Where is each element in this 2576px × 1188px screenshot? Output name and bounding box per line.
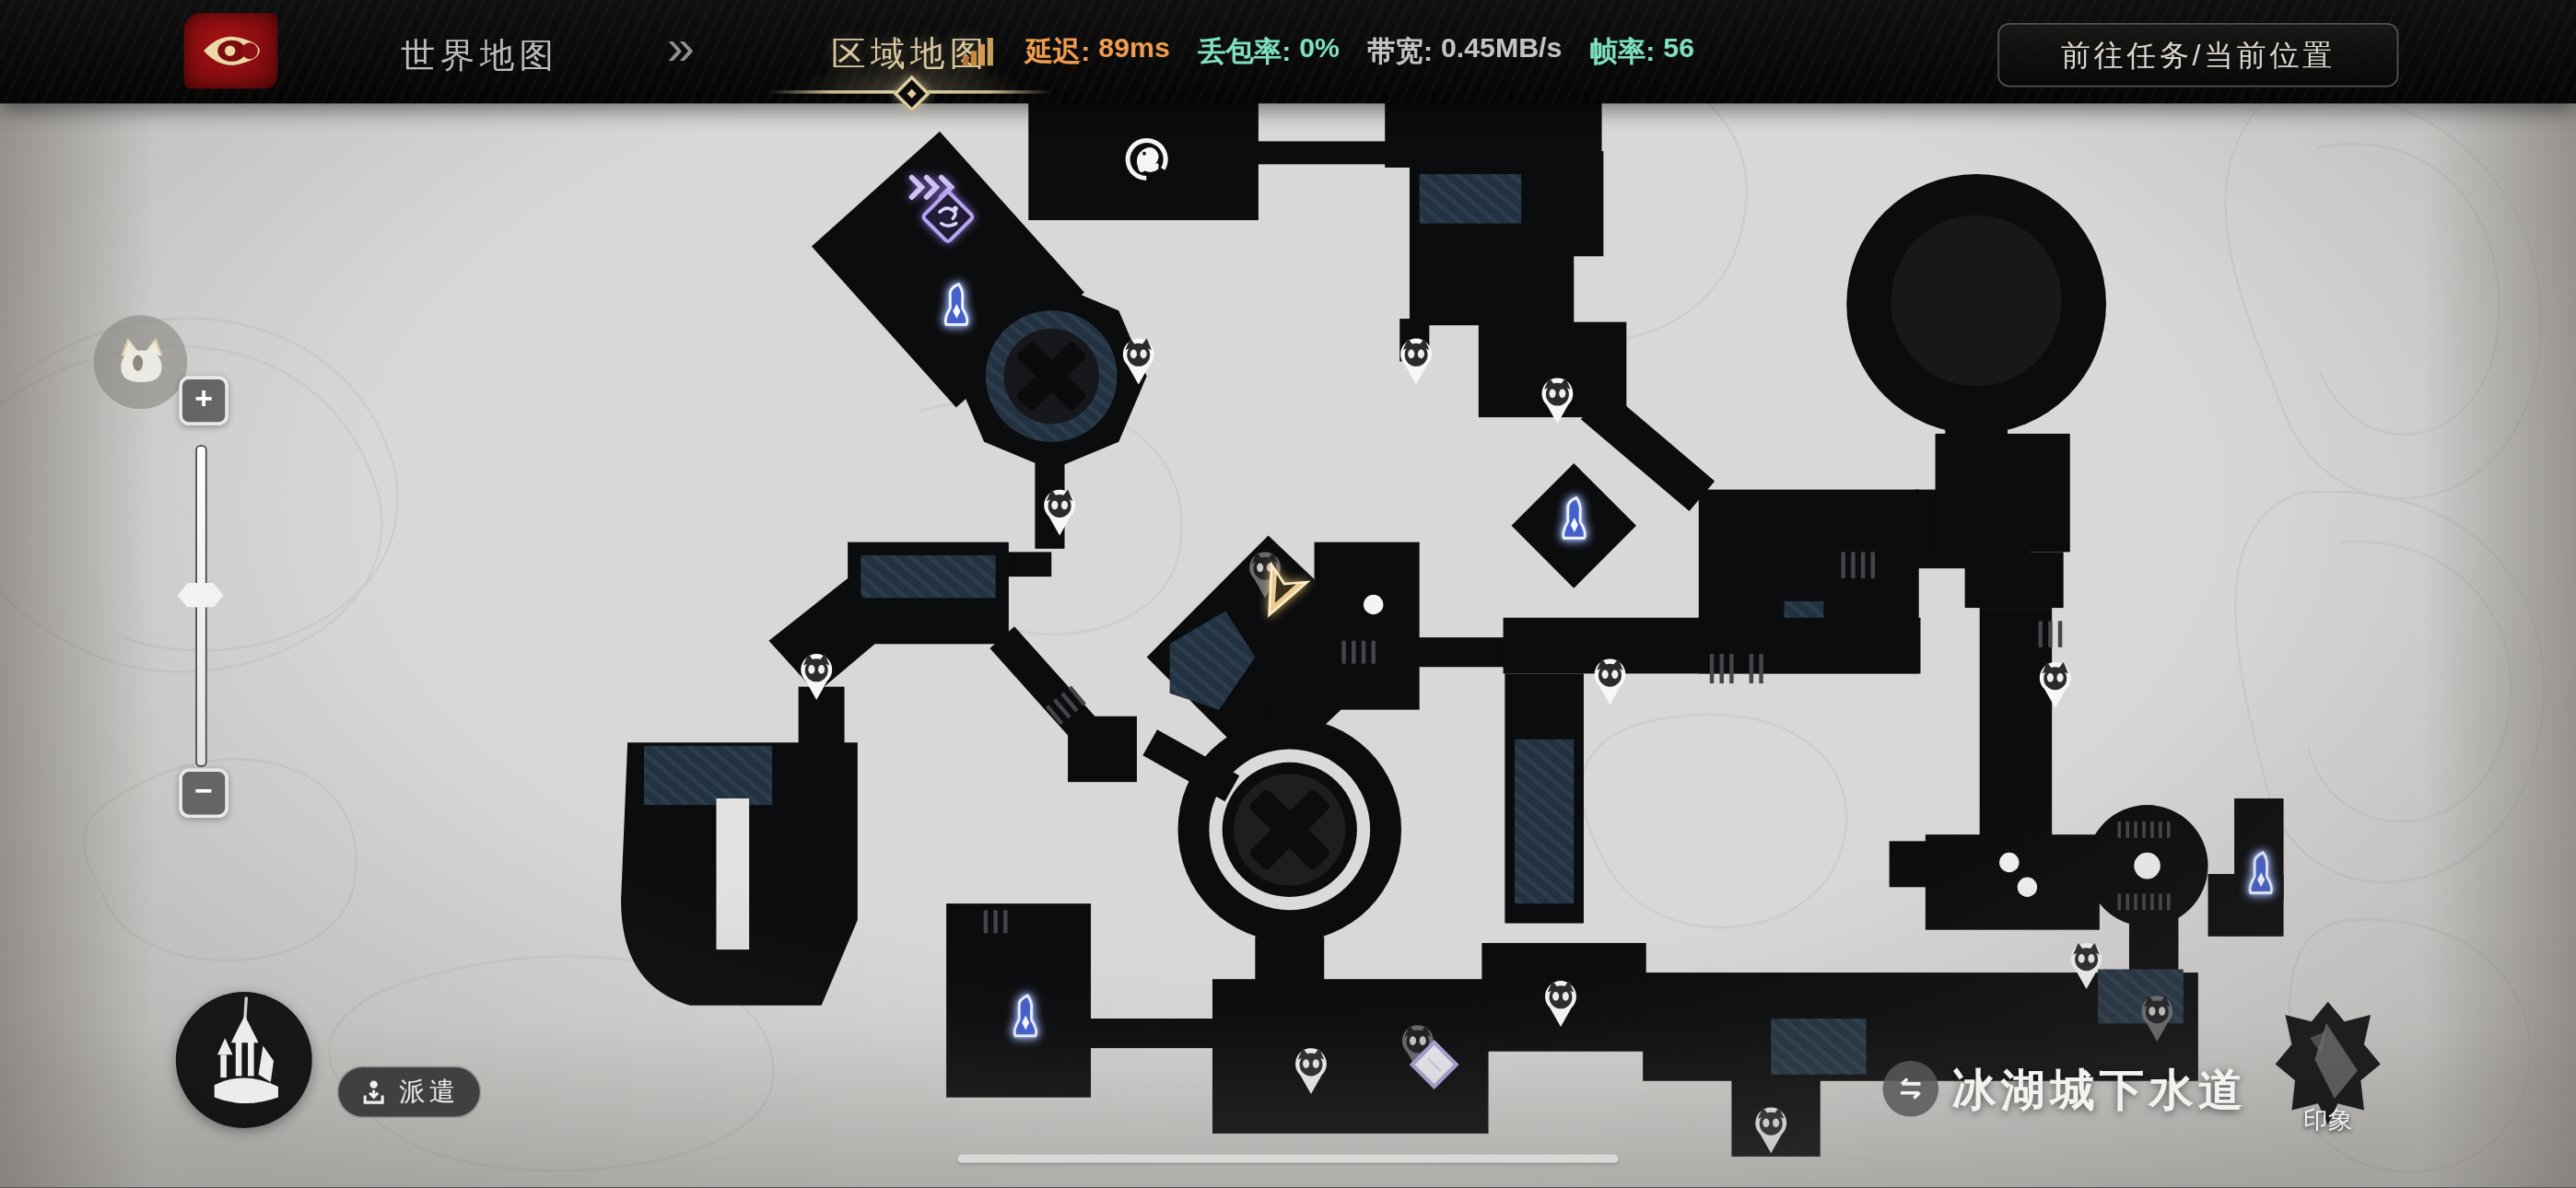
bandwidth-stat: 带宽:0.45MB/s — [1367, 32, 1562, 70]
dispatch-label: 派遣 — [399, 1075, 458, 1109]
chevron-separator-icon: » — [667, 19, 688, 76]
latency-stat: 延迟:89ms — [1025, 32, 1170, 70]
eye-emblem-icon — [198, 27, 263, 76]
fps-stat: 帧率:56 — [1590, 32, 1694, 70]
swap-arrows-icon — [1894, 1072, 1927, 1105]
top-bar: 世界地图 » 区域地图 延迟:89ms 丢包率:0% 带宽:0.45MB/s 帧 — [0, 0, 2576, 103]
zoom-out-button[interactable]: − — [179, 769, 228, 818]
cat-face-icon — [104, 330, 176, 395]
packet-loss-stat: 丢包率:0% — [1198, 32, 1340, 70]
game-logo[interactable] — [184, 13, 278, 88]
creature-badge-button[interactable] — [94, 315, 188, 409]
signal-bars-icon — [961, 33, 997, 69]
zoom-in-button[interactable]: + — [179, 376, 228, 425]
impression-label: 印象 — [2267, 1105, 2389, 1136]
tab-world-map[interactable]: 世界地图 — [381, 33, 579, 79]
switch-location-button[interactable] — [1883, 1061, 1939, 1117]
location-name-label: 冰湖城下水道 — [1951, 1061, 2247, 1120]
dungeon-map[interactable] — [0, 0, 2576, 1188]
small-dot-marker[interactable] — [1999, 853, 2019, 872]
landmark-badge-button[interactable] — [176, 992, 312, 1128]
horizontal-scrollbar[interactable] — [958, 1155, 1619, 1163]
small-dot-marker[interactable] — [2018, 878, 2037, 897]
castle-icon — [183, 995, 305, 1126]
dispatch-icon — [360, 1078, 388, 1106]
impression-button[interactable]: 印象 — [2267, 998, 2389, 1139]
network-stats: 延迟:89ms 丢包率:0% 带宽:0.45MB/s 帧率:56 — [961, 15, 1694, 87]
goto-task-location-button[interactable]: 前往任务/当前位置 — [1997, 23, 2398, 87]
game-screen: 世界地图 » 区域地图 延迟:89ms 丢包率:0% 带宽:0.45MB/s 帧 — [0, 0, 2576, 1188]
small-dot-marker[interactable] — [1364, 595, 1383, 614]
dispatch-button[interactable]: 派遣 — [337, 1066, 482, 1118]
